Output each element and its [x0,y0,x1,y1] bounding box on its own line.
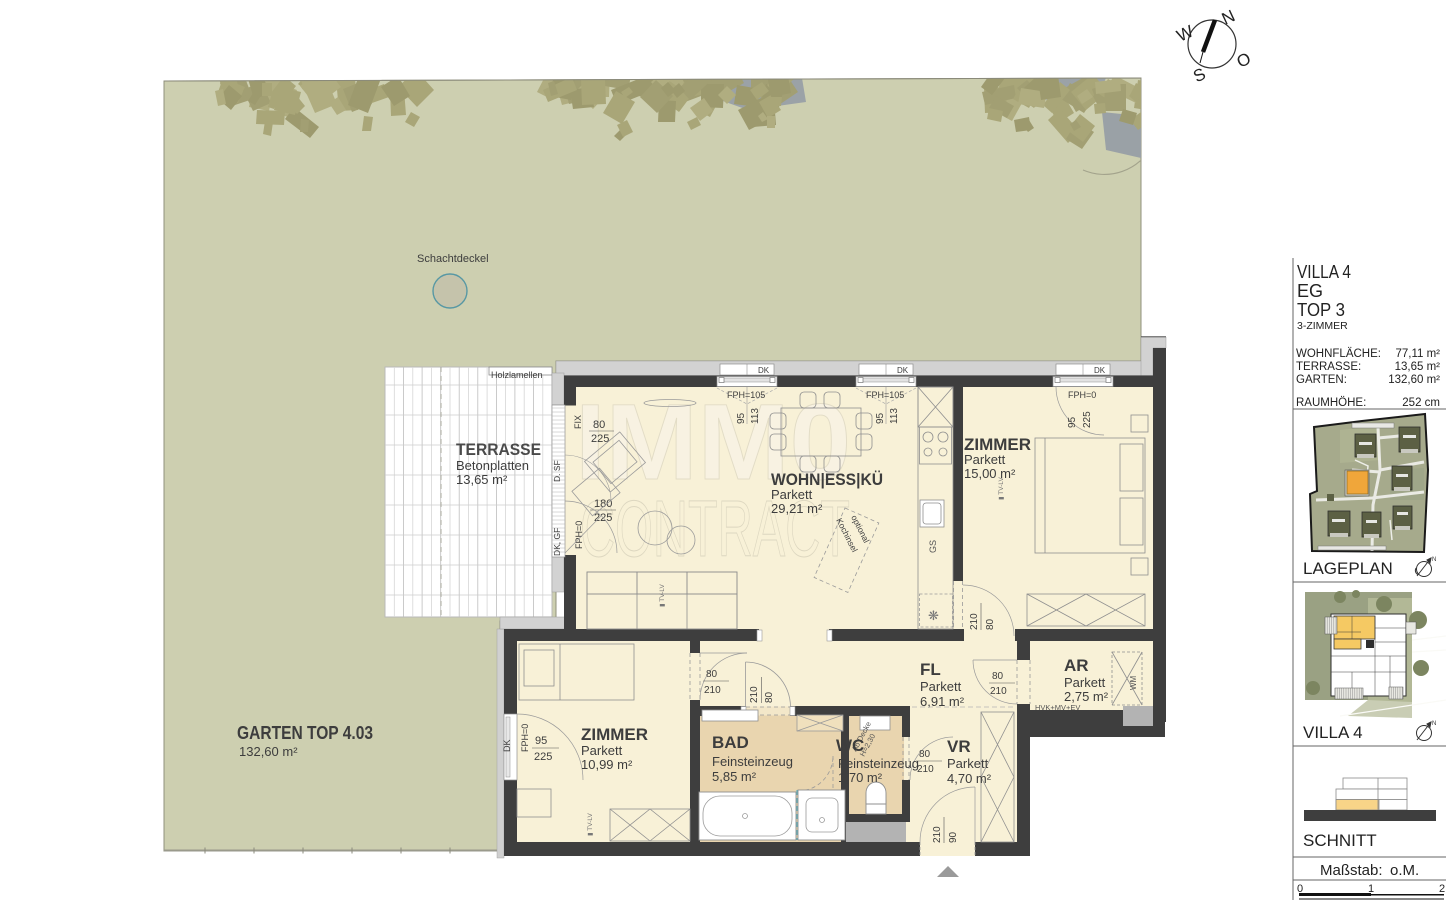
svg-text:180: 180 [594,498,612,510]
svg-text:RAUMHÖHE:: RAUMHÖHE: [1296,397,1366,409]
svg-text:80: 80 [919,749,931,760]
svg-text:WOHNFLÄCHE:: WOHNFLÄCHE: [1296,348,1381,360]
svg-text:80: 80 [764,691,775,703]
svg-text:FPH=0: FPH=0 [1068,390,1096,400]
svg-text:TERRASSE: TERRASSE [456,440,541,459]
svg-text:Parkett: Parkett [947,756,989,771]
svg-text:80: 80 [706,669,718,680]
svg-text:SCHNITT: SCHNITT [1303,831,1377,850]
svg-text:Parkett: Parkett [1064,675,1106,690]
svg-text:EG: EG [1297,281,1323,301]
svg-text:10,99 m²: 10,99 m² [581,757,633,772]
svg-text:4,70 m²: 4,70 m² [947,771,992,786]
svg-text:AR: AR [1064,656,1089,675]
svg-text:95: 95 [736,412,747,424]
svg-text:Parkett: Parkett [964,452,1006,467]
svg-text:6,91 m²: 6,91 m² [920,694,965,709]
svg-text:GARTEN:: GARTEN: [1296,374,1347,386]
svg-text:Maßstab:: Maßstab: [1320,862,1383,879]
svg-text:TOP 3: TOP 3 [1297,300,1345,320]
svg-text:FPH=105: FPH=105 [866,390,904,400]
svg-text:Feinsteinzeug: Feinsteinzeug [838,756,919,771]
svg-text:DK: DK [758,366,770,375]
svg-text:o.M.: o.M. [1390,862,1419,879]
svg-text:95: 95 [535,735,547,747]
svg-text:GARTEN TOP 4.03: GARTEN TOP 4.03 [237,723,373,743]
svg-text:3-ZIMMER: 3-ZIMMER [1297,320,1348,332]
svg-text:Holzlamellen: Holzlamellen [491,370,543,380]
svg-text:225: 225 [534,751,552,763]
svg-text:ZIMMER: ZIMMER [581,725,648,744]
svg-text:225: 225 [1082,411,1093,428]
svg-text:FL: FL [920,660,941,679]
svg-text:BAD: BAD [712,733,749,752]
svg-text:Parkett: Parkett [581,743,623,758]
svg-text:DK, GF: DK, GF [552,528,562,556]
svg-text:210: 210 [749,686,760,703]
svg-text:210: 210 [704,685,721,696]
svg-text:80: 80 [593,419,605,431]
svg-text:210: 210 [917,764,934,775]
svg-text:DK: DK [1094,366,1106,375]
svg-text:VILLA 4: VILLA 4 [1303,723,1363,742]
svg-text:90: 90 [948,831,959,843]
svg-text:HVK+MV+EV: HVK+MV+EV [1035,703,1080,712]
svg-text:95: 95 [1067,416,1078,428]
svg-text:▮ TV-LV: ▮ TV-LV [659,583,666,607]
svg-text:Feinsteinzeug: Feinsteinzeug [712,754,793,769]
svg-text:GS: GS [928,540,938,553]
svg-text:TERRASSE:: TERRASSE: [1296,361,1361,373]
svg-text:80: 80 [985,618,996,630]
svg-text:DK: DK [897,366,909,375]
svg-text:Parkett: Parkett [920,679,962,694]
svg-text:252 cm: 252 cm [1402,397,1440,409]
svg-text:113: 113 [750,408,761,424]
svg-text:Parkett: Parkett [771,487,813,502]
svg-text:95: 95 [875,412,886,424]
svg-text:5,85 m²: 5,85 m² [712,769,757,784]
svg-text:N: N [1432,557,1436,563]
svg-text:FPH=105: FPH=105 [727,390,765,400]
svg-text:210: 210 [990,686,1007,697]
svg-text:1,70 m²: 1,70 m² [838,770,883,785]
svg-text:77,11 m²: 77,11 m² [1395,348,1440,360]
svg-text:▮ TV-LV: ▮ TV-LV [998,476,1005,500]
svg-text:210: 210 [969,613,980,630]
svg-text:132,60 m²: 132,60 m² [239,744,298,759]
svg-text:210: 210 [932,826,943,843]
svg-text:▮ TV-LV: ▮ TV-LV [587,812,594,836]
svg-text:FPH=0: FPH=0 [520,724,530,752]
svg-text:15,00 m²: 15,00 m² [964,466,1016,481]
svg-text:Betonplatten: Betonplatten [456,458,529,473]
svg-text:Schachtdeckel: Schachtdeckel [417,253,489,265]
svg-text:2: 2 [1439,883,1445,895]
svg-text:WM: WM [1129,675,1138,690]
svg-text:DK: DK [502,739,512,752]
svg-text:132,60 m²: 132,60 m² [1388,374,1440,386]
svg-text:29,21 m²: 29,21 m² [771,501,823,516]
svg-text:D. SF: D. SF [552,460,562,482]
svg-text:13,65 m²: 13,65 m² [456,472,508,487]
svg-text:80: 80 [992,671,1004,682]
svg-text:❋: ❋ [928,608,939,623]
svg-text:VILLA 4: VILLA 4 [1297,262,1351,282]
svg-text:2,75 m²: 2,75 m² [1064,689,1109,704]
svg-text:N: N [1432,721,1436,727]
svg-text:LAGEPLAN: LAGEPLAN [1303,559,1393,578]
svg-text:WC: WC [836,736,864,755]
svg-text:13,65 m²: 13,65 m² [1395,361,1441,373]
svg-text:FIX: FIX [573,415,583,429]
svg-text:113: 113 [889,408,900,424]
svg-text:VR: VR [947,737,971,756]
